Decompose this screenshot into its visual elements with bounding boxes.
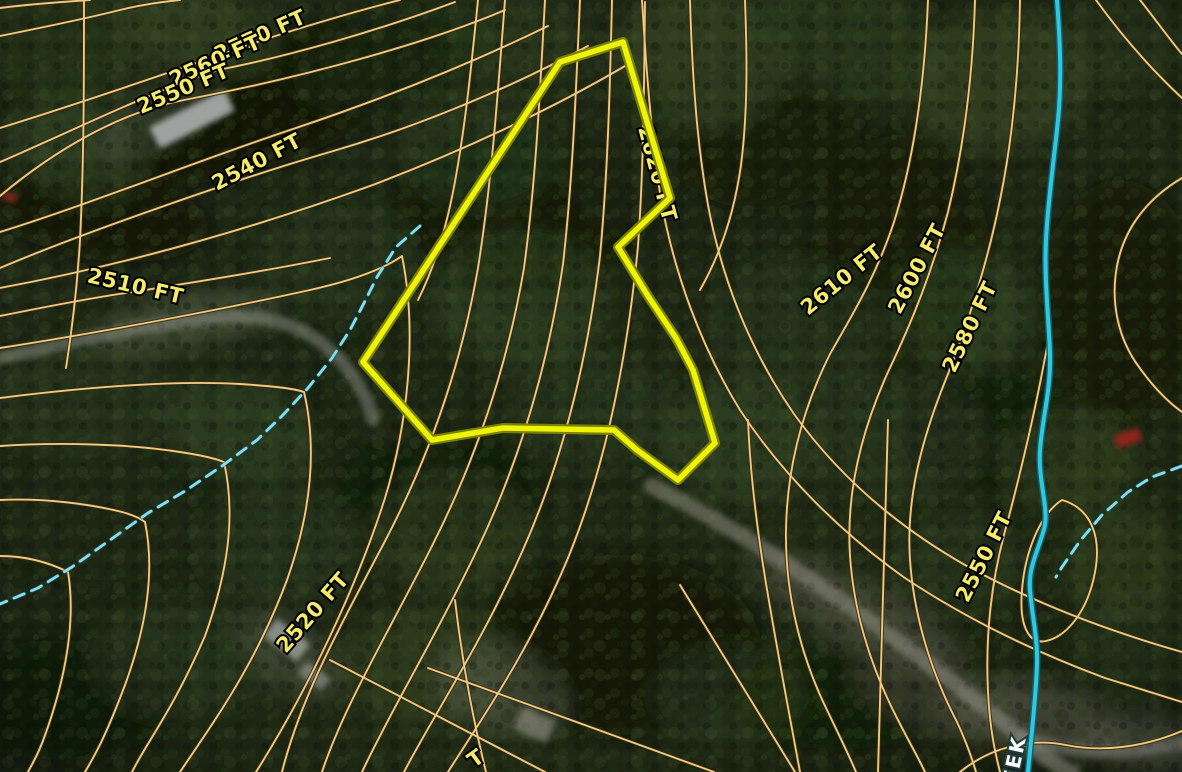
topo-map-svg: 2570 FT2560 FT2550 FT2540 FT2510 FT2620 …	[0, 0, 1182, 772]
map-viewport[interactable]: 2570 FT2560 FT2550 FT2540 FT2510 FT2620 …	[0, 0, 1182, 772]
